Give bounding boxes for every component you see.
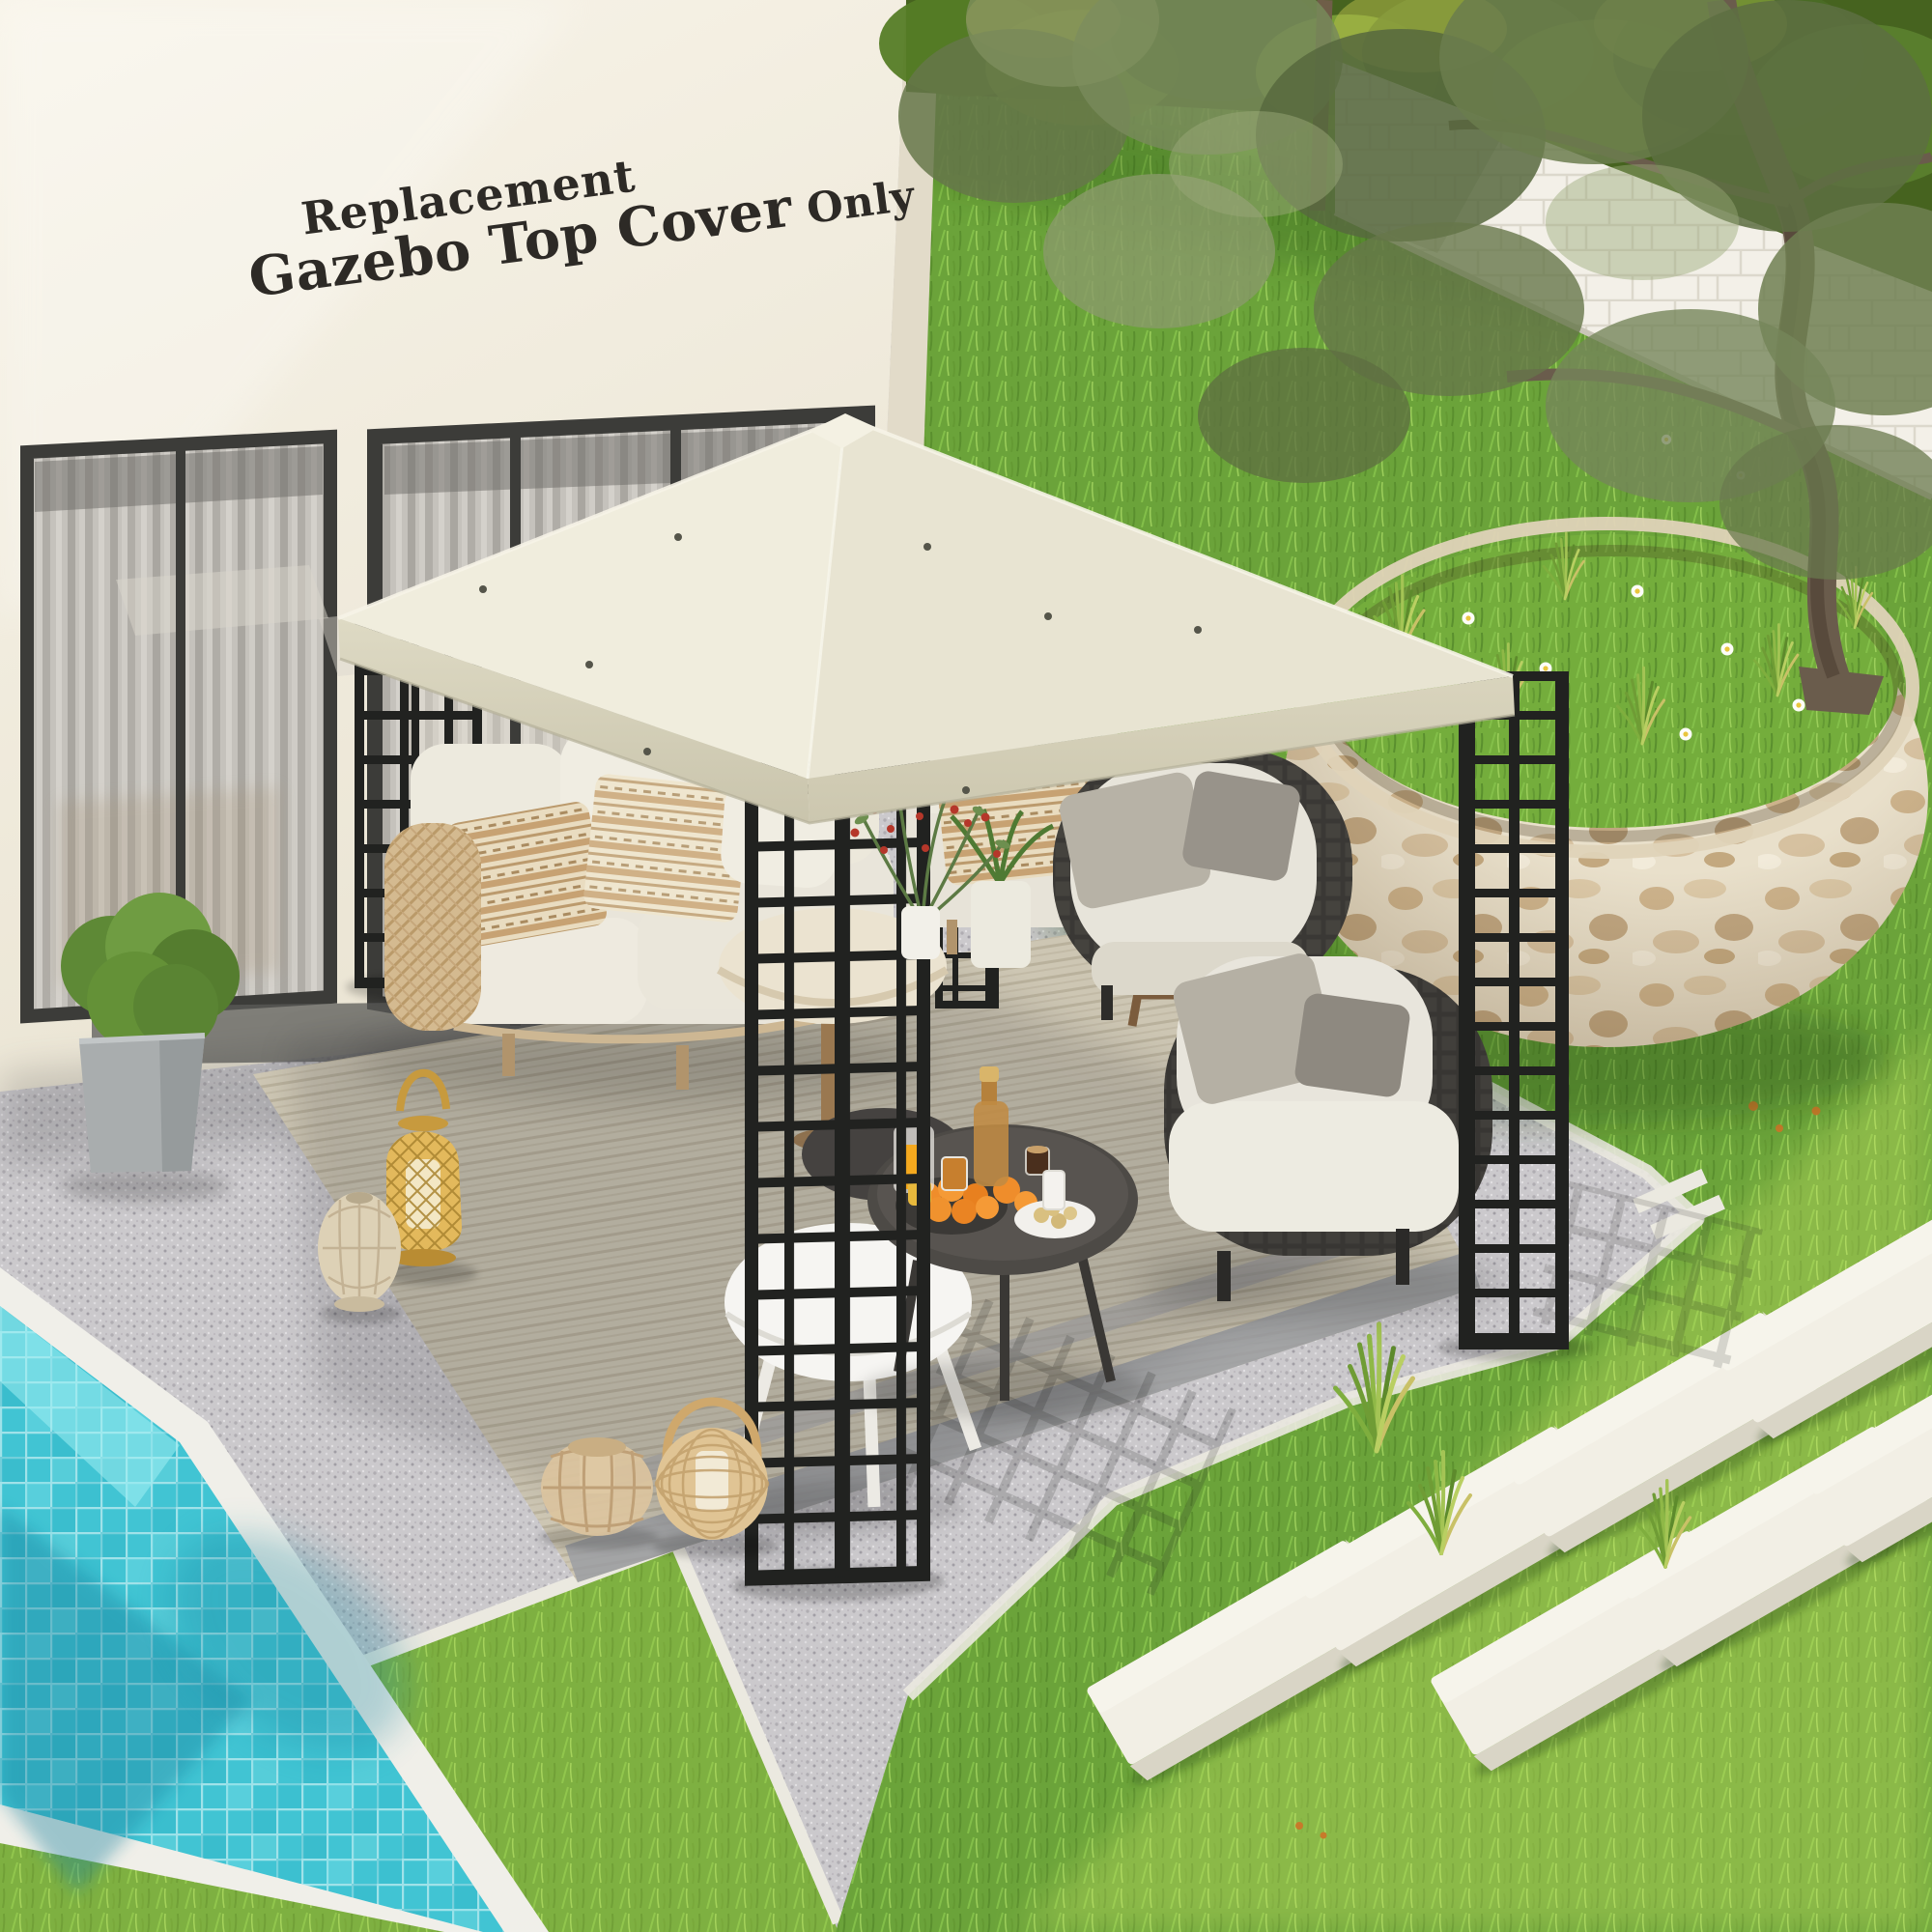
gray-throw-pillow	[1180, 769, 1302, 883]
backyard-gazebo-scene: Replacement Gazebo Top Cover Only	[0, 0, 1932, 1932]
gray-throw-pillow	[1293, 992, 1411, 1098]
sofa-wicker-arm	[384, 823, 481, 1031]
gazebo-post-right	[1437, 676, 1592, 1361]
lounge-chair-lower	[1140, 951, 1507, 1318]
